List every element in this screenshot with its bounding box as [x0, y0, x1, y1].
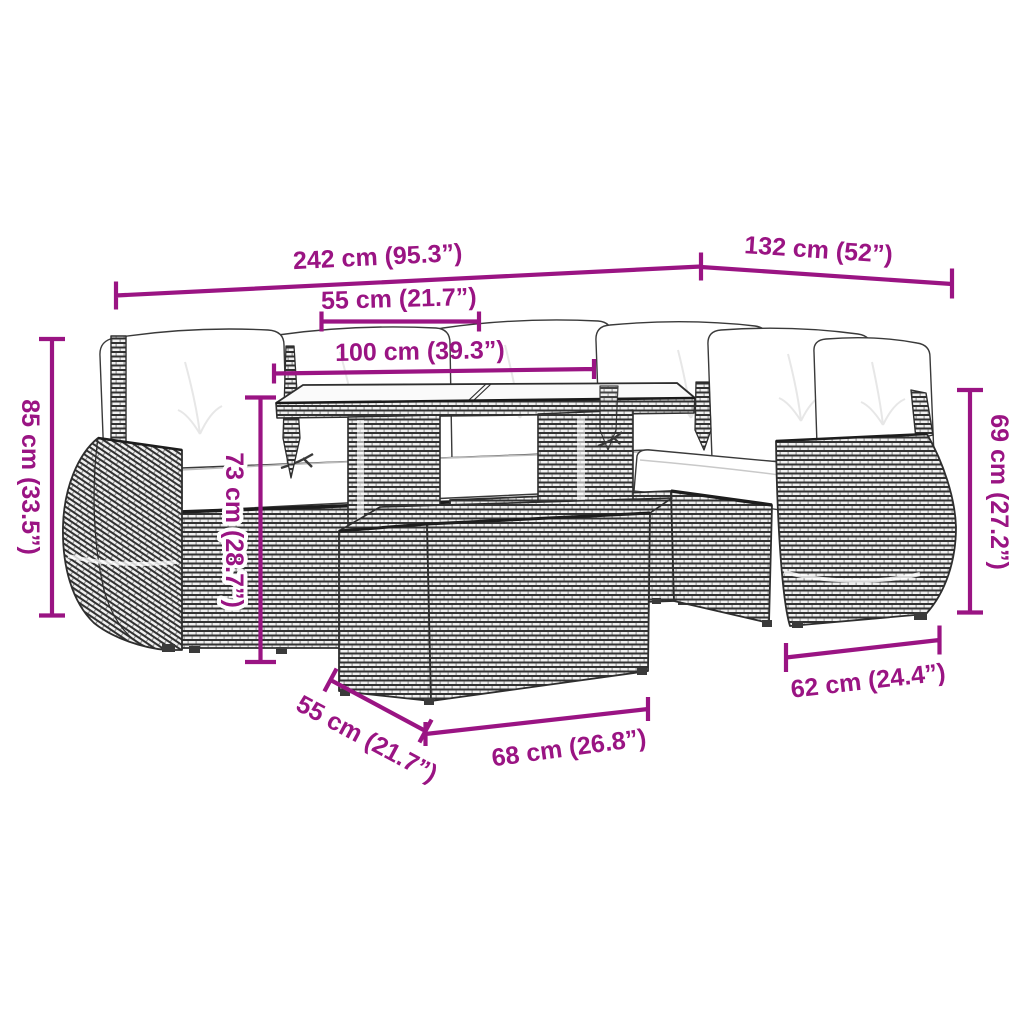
svg-text:132 cm (52”): 132 cm (52”) [743, 231, 893, 269]
svg-text:85 cm (33.5”): 85 cm (33.5”) [16, 399, 44, 555]
svg-text:62 cm (24.4”): 62 cm (24.4”) [789, 658, 947, 703]
svg-text:68 cm (26.8”): 68 cm (26.8”) [490, 724, 648, 773]
svg-text:100 cm (39.3”): 100 cm (39.3”) [335, 336, 505, 367]
svg-text:69 cm (27.2”): 69 cm (27.2”) [985, 414, 1013, 570]
svg-text:242 cm (95.3”): 242 cm (95.3”) [292, 239, 463, 275]
svg-text:73 cm (28.7”): 73 cm (28.7”) [220, 452, 248, 608]
svg-text:55 cm (21.7”): 55 cm (21.7”) [321, 283, 477, 315]
